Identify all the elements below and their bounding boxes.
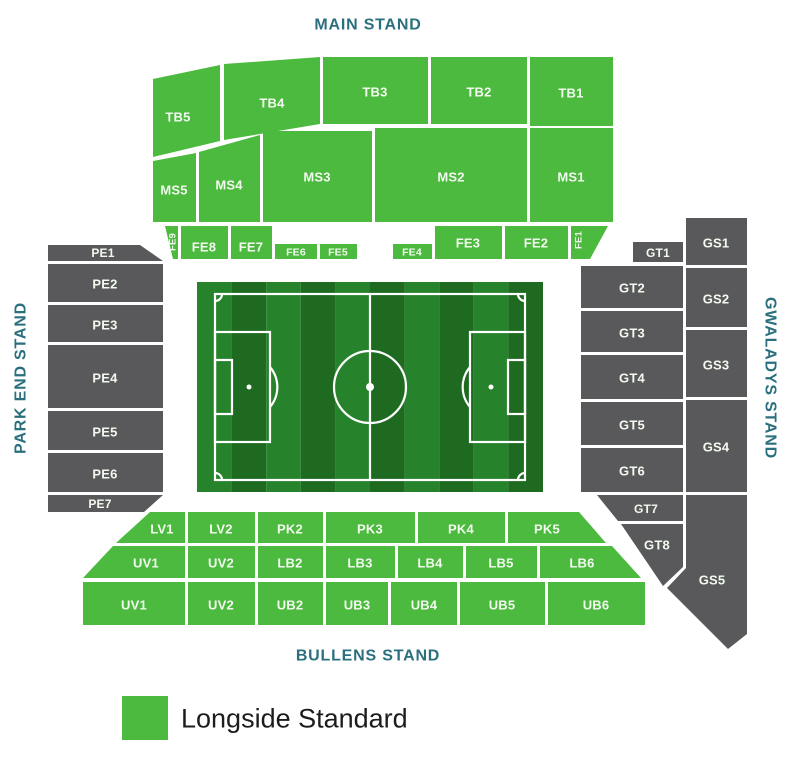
section-gt3-shape[interactable] <box>581 311 683 352</box>
main-stand-label: MAIN STAND <box>314 17 421 34</box>
section-gs3[interactable]: GS3 <box>686 330 747 397</box>
section-uv1-middle-shape[interactable] <box>83 546 185 578</box>
section-fe7-shape[interactable] <box>231 226 272 259</box>
section-gt4-shape[interactable] <box>581 355 683 399</box>
section-pe2[interactable]: PE2 <box>48 264 163 302</box>
section-fe8[interactable]: FE8 <box>181 226 228 259</box>
section-tb2-shape[interactable] <box>431 57 527 124</box>
section-ms3-shape[interactable] <box>263 131 372 222</box>
section-tb4[interactable]: TB4 <box>224 57 320 140</box>
section-pe1[interactable]: PE1 <box>48 245 163 261</box>
center-spot <box>366 383 374 391</box>
right-penalty-spot <box>489 385 494 390</box>
section-fe3-shape[interactable] <box>435 226 502 259</box>
section-pk5-shape[interactable] <box>508 512 606 543</box>
section-fe7[interactable]: FE7 <box>231 226 272 259</box>
section-fe8-shape[interactable] <box>181 226 228 259</box>
section-gt7-shape[interactable] <box>597 495 683 521</box>
section-gt2-shape[interactable] <box>581 266 683 308</box>
bullens-stand-label: BULLENS STAND <box>296 648 440 665</box>
section-pk2-shape[interactable] <box>258 512 323 543</box>
section-fe2-shape[interactable] <box>505 226 568 259</box>
section-gt1-shape[interactable] <box>633 242 683 262</box>
left-penalty-spot <box>247 385 252 390</box>
section-pk4-shape[interactable] <box>418 512 505 543</box>
section-pe3[interactable]: PE3 <box>48 305 163 342</box>
section-gt1[interactable]: GT1 <box>633 242 683 262</box>
park-end-stand-label: PARK END STAND <box>13 302 30 454</box>
section-ub6-shape[interactable] <box>548 582 645 625</box>
section-pk5[interactable]: PK5 <box>508 512 606 543</box>
section-pe4[interactable]: PE4 <box>48 345 163 408</box>
section-tb1[interactable]: TB1 <box>530 57 613 126</box>
section-pe4-shape[interactable] <box>48 345 163 408</box>
gwaladys-stand-label: GWALADYS STAND <box>761 297 778 459</box>
section-gt5[interactable]: GT5 <box>581 402 683 445</box>
section-gs2[interactable]: GS2 <box>686 268 747 327</box>
section-pe3-shape[interactable] <box>48 305 163 342</box>
section-pe6[interactable]: PE6 <box>48 453 163 492</box>
section-ms5[interactable]: MS5 <box>153 153 196 222</box>
section-fe1[interactable]: FE1 <box>571 226 608 259</box>
section-fe1-shape[interactable] <box>571 226 608 259</box>
section-gt6-shape[interactable] <box>581 448 683 492</box>
section-pk4[interactable]: PK4 <box>418 512 505 543</box>
section-fe6[interactable]: FE6 <box>275 244 317 259</box>
section-fe2[interactable]: FE2 <box>505 226 568 259</box>
section-tb3-shape[interactable] <box>323 57 428 124</box>
section-gt4[interactable]: GT4 <box>581 355 683 399</box>
section-lb3-shape[interactable] <box>326 546 395 578</box>
section-ub2[interactable]: UB2 <box>258 582 323 625</box>
section-lb3[interactable]: LB3 <box>326 546 395 578</box>
section-uv2-middle-shape[interactable] <box>188 546 255 578</box>
section-gt5-shape[interactable] <box>581 402 683 445</box>
section-ub2-shape[interactable] <box>258 582 323 625</box>
section-tb5-shape[interactable] <box>153 65 220 157</box>
section-lb6[interactable]: LB6 <box>540 546 641 578</box>
section-lb4[interactable]: LB4 <box>398 546 463 578</box>
section-gs2-shape[interactable] <box>686 268 747 327</box>
section-ms2[interactable]: MS2 <box>375 128 527 222</box>
section-lb5-shape[interactable] <box>466 546 537 578</box>
section-fe5-shape[interactable] <box>320 244 357 259</box>
section-ms1-shape[interactable] <box>530 128 613 222</box>
section-tb3[interactable]: TB3 <box>323 57 428 124</box>
legend-label: Longside Standard <box>181 703 408 733</box>
section-uv2-lower-shape[interactable] <box>188 582 255 625</box>
section-tb5[interactable]: TB5 <box>153 65 220 157</box>
section-ub6[interactable]: UB6 <box>548 582 645 625</box>
section-gs3-shape[interactable] <box>686 330 747 397</box>
section-fe3[interactable]: FE3 <box>435 226 502 259</box>
section-pk3-shape[interactable] <box>326 512 415 543</box>
section-uv2-lower[interactable]: UV2 <box>188 582 255 625</box>
section-gs4[interactable]: GS4 <box>686 400 747 492</box>
section-pe5[interactable]: PE5 <box>48 411 163 450</box>
section-fe9[interactable]: FE9 <box>165 226 178 259</box>
section-gs1[interactable]: GS1 <box>686 218 747 265</box>
section-ub5[interactable]: UB5 <box>460 582 545 625</box>
section-uv1-middle[interactable]: UV1 <box>83 546 185 578</box>
section-ub3[interactable]: UB3 <box>326 582 388 625</box>
pitch <box>197 282 543 492</box>
section-fe4-shape[interactable] <box>393 244 432 259</box>
section-ub4[interactable]: UB4 <box>391 582 457 625</box>
section-ms1[interactable]: MS1 <box>530 128 613 222</box>
section-ub4-shape[interactable] <box>391 582 457 625</box>
section-lv2[interactable]: LV2 <box>188 512 255 543</box>
section-lb5[interactable]: LB5 <box>466 546 537 578</box>
section-ms4[interactable]: MS4 <box>199 135 260 222</box>
section-tb1-shape[interactable] <box>530 57 613 126</box>
section-fe9-shape[interactable] <box>165 226 178 259</box>
section-fe6-shape[interactable] <box>275 244 317 259</box>
section-ub3-shape[interactable] <box>326 582 388 625</box>
section-pe1-shape[interactable] <box>48 245 163 261</box>
section-gt6[interactable]: GT6 <box>581 448 683 492</box>
section-lb2[interactable]: LB2 <box>258 546 323 578</box>
section-pe6-shape[interactable] <box>48 453 163 492</box>
section-lb6-shape[interactable] <box>540 546 641 578</box>
stadium-seat-map: MAIN STAND BULLENS STAND PARK END STAND … <box>0 0 798 766</box>
section-lb4-shape[interactable] <box>398 546 463 578</box>
section-ms3[interactable]: MS3 <box>263 131 372 222</box>
legend: Longside Standard <box>122 696 408 740</box>
section-lv2-shape[interactable] <box>188 512 255 543</box>
section-pe7[interactable]: PE7 <box>48 495 163 512</box>
section-lv1[interactable]: LV1 <box>116 512 185 543</box>
section-fe5[interactable]: FE5 <box>320 244 357 259</box>
section-gt2[interactable]: GT2 <box>581 266 683 308</box>
section-tb4-shape[interactable] <box>224 57 320 140</box>
section-uv1-lower-shape[interactable] <box>83 582 185 625</box>
section-ms4-shape[interactable] <box>199 135 260 222</box>
section-ub5-shape[interactable] <box>460 582 545 625</box>
section-fe4[interactable]: FE4 <box>393 244 432 259</box>
section-lb2-shape[interactable] <box>258 546 323 578</box>
section-gt3[interactable]: GT3 <box>581 311 683 352</box>
section-pk2[interactable]: PK2 <box>258 512 323 543</box>
section-pk3[interactable]: PK3 <box>326 512 415 543</box>
section-uv2-middle[interactable]: UV2 <box>188 546 255 578</box>
section-pe5-shape[interactable] <box>48 411 163 450</box>
legend-swatch <box>122 696 168 740</box>
section-pe7-shape[interactable] <box>48 495 163 512</box>
section-lv1-shape[interactable] <box>116 512 185 543</box>
section-gt7[interactable]: GT7 <box>597 495 683 521</box>
section-ms5-shape[interactable] <box>153 153 196 222</box>
section-ms2-shape[interactable] <box>375 128 527 222</box>
section-tb2[interactable]: TB2 <box>431 57 527 124</box>
section-gs4-shape[interactable] <box>686 400 747 492</box>
section-pe2-shape[interactable] <box>48 264 163 302</box>
section-uv1-lower[interactable]: UV1 <box>83 582 185 625</box>
section-gs1-shape[interactable] <box>686 218 747 265</box>
